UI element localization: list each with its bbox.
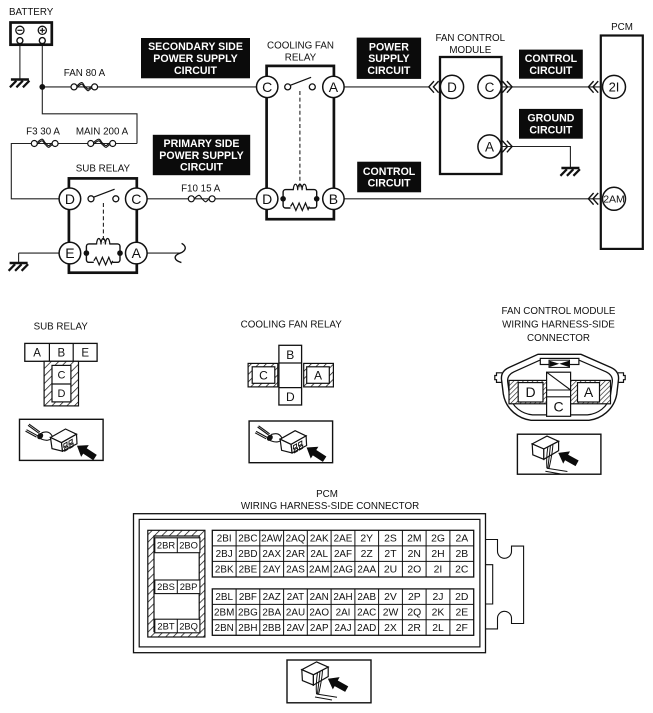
svg-text:2E: 2E — [455, 608, 468, 619]
svg-text:2AL: 2AL — [310, 549, 328, 560]
svg-text:C: C — [131, 191, 141, 207]
svg-text:2BG: 2BG — [238, 608, 258, 619]
svg-text:2BR: 2BR — [157, 540, 175, 551]
svg-text:FAN CONTROL MODULE: FAN CONTROL MODULE — [502, 306, 616, 317]
svg-text:2O: 2O — [407, 565, 421, 576]
svg-text:2AE: 2AE — [334, 534, 353, 545]
svg-text:POWER SUPPLY: POWER SUPPLY — [159, 150, 243, 162]
svg-text:2AX: 2AX — [262, 549, 281, 560]
svg-text:CONNECTOR: CONNECTOR — [527, 333, 590, 344]
svg-text:2AT: 2AT — [287, 592, 304, 603]
svg-text:2BK: 2BK — [215, 565, 234, 576]
svg-text:2AM: 2AM — [603, 194, 625, 206]
svg-text:RELAY: RELAY — [285, 52, 317, 63]
svg-text:2P: 2P — [408, 592, 421, 603]
svg-text:2Z: 2Z — [361, 549, 374, 560]
svg-text:2Q: 2Q — [407, 608, 421, 619]
svg-text:2L: 2L — [432, 623, 444, 634]
svg-text:2BE: 2BE — [239, 565, 258, 576]
svg-text:2AC: 2AC — [357, 608, 376, 619]
svg-text:SUB RELAY: SUB RELAY — [76, 164, 131, 175]
svg-text:SECONDARY SIDE: SECONDARY SIDE — [148, 41, 243, 53]
svg-text:PCM: PCM — [316, 489, 338, 500]
svg-text:2C: 2C — [455, 565, 469, 576]
svg-text:2BF: 2BF — [239, 592, 257, 603]
svg-text:2BP: 2BP — [180, 581, 198, 592]
svg-text:POWER SUPPLY: POWER SUPPLY — [153, 53, 237, 65]
svg-text:D: D — [65, 191, 75, 207]
svg-text:CIRCUIT: CIRCUIT — [174, 65, 217, 77]
svg-text:CONTROL: CONTROL — [525, 53, 578, 65]
svg-text:FAN 80 A: FAN 80 A — [64, 68, 106, 79]
svg-text:2AD: 2AD — [357, 623, 376, 634]
svg-text:2R: 2R — [408, 623, 422, 634]
svg-text:A: A — [584, 384, 594, 400]
svg-text:2AZ: 2AZ — [263, 592, 281, 603]
svg-text:2H: 2H — [431, 549, 444, 560]
svg-text:2BD: 2BD — [238, 549, 257, 560]
svg-text:2BC: 2BC — [238, 534, 257, 545]
svg-text:2AA: 2AA — [357, 565, 376, 576]
svg-text:WIRING HARNESS-SIDE CONNECTOR: WIRING HARNESS-SIDE CONNECTOR — [241, 501, 419, 512]
svg-text:2X: 2X — [384, 623, 397, 634]
svg-text:D: D — [262, 191, 272, 207]
svg-text:CIRCUIT: CIRCUIT — [368, 178, 411, 190]
svg-text:C: C — [259, 368, 268, 382]
svg-text:2AP: 2AP — [310, 623, 329, 634]
svg-text:2BJ: 2BJ — [216, 549, 233, 560]
svg-text:COOLING FAN: COOLING FAN — [267, 41, 334, 52]
svg-text:D: D — [58, 388, 66, 400]
svg-text:C: C — [58, 370, 66, 382]
svg-text:2AV: 2AV — [287, 623, 305, 634]
svg-text:2BN: 2BN — [215, 623, 234, 634]
svg-text:2BB: 2BB — [262, 623, 281, 634]
svg-text:C: C — [262, 79, 272, 95]
svg-text:2BT: 2BT — [157, 620, 174, 631]
svg-text:E: E — [81, 348, 89, 360]
svg-text:CIRCUIT: CIRCUIT — [529, 125, 572, 137]
svg-text:2AB: 2AB — [357, 592, 376, 603]
svg-text:CIRCUIT: CIRCUIT — [529, 65, 572, 77]
svg-text:BATTERY: BATTERY — [9, 7, 54, 18]
svg-text:B: B — [57, 348, 65, 360]
svg-text:D: D — [526, 384, 536, 400]
svg-text:E: E — [65, 245, 74, 261]
svg-text:2BI: 2BI — [217, 534, 232, 545]
svg-text:2F: 2F — [456, 623, 468, 634]
svg-text:D: D — [286, 390, 295, 404]
svg-text:D: D — [447, 80, 457, 95]
svg-text:2AQ: 2AQ — [286, 534, 306, 545]
svg-text:2N: 2N — [408, 549, 421, 560]
svg-text:2AY: 2AY — [263, 565, 281, 576]
svg-text:CONTROL: CONTROL — [363, 166, 416, 178]
svg-text:2AI: 2AI — [336, 608, 351, 619]
svg-text:2BS: 2BS — [157, 581, 175, 592]
svg-text:2BL: 2BL — [215, 592, 233, 603]
svg-text:2BO: 2BO — [179, 540, 198, 551]
svg-text:2BH: 2BH — [238, 623, 257, 634]
svg-text:WIRING HARNESS-SIDE: WIRING HARNESS-SIDE — [502, 320, 615, 331]
svg-text:C: C — [485, 80, 495, 95]
svg-text:F3 30 A: F3 30 A — [26, 127, 60, 138]
svg-text:2AM: 2AM — [309, 565, 329, 576]
svg-text:2AJ: 2AJ — [334, 623, 351, 634]
svg-text:2AG: 2AG — [333, 565, 353, 576]
svg-text:A: A — [132, 245, 142, 261]
svg-text:POWER: POWER — [369, 41, 409, 53]
svg-text:2AK: 2AK — [310, 534, 329, 545]
svg-text:MODULE: MODULE — [449, 45, 491, 56]
svg-text:A: A — [33, 348, 41, 360]
svg-text:SUB RELAY: SUB RELAY — [34, 321, 89, 332]
svg-text:2D: 2D — [455, 592, 468, 603]
svg-text:GROUND: GROUND — [527, 113, 574, 125]
svg-text:2I: 2I — [609, 80, 620, 95]
svg-text:C: C — [554, 398, 564, 414]
svg-text:PRIMARY SIDE: PRIMARY SIDE — [164, 138, 240, 150]
svg-text:2AF: 2AF — [334, 549, 352, 560]
svg-text:A: A — [314, 368, 322, 382]
svg-text:SUPPLY: SUPPLY — [368, 53, 409, 65]
svg-text:B: B — [286, 348, 294, 362]
svg-text:2I: 2I — [434, 565, 443, 576]
svg-text:2BA: 2BA — [262, 608, 281, 619]
svg-text:2S: 2S — [384, 534, 397, 545]
svg-text:2U: 2U — [384, 565, 397, 576]
svg-text:2A: 2A — [455, 534, 468, 545]
svg-text:A: A — [485, 139, 494, 154]
svg-text:2V: 2V — [384, 592, 397, 603]
svg-text:COOLING FAN RELAY: COOLING FAN RELAY — [241, 320, 343, 331]
svg-text:2G: 2G — [431, 534, 445, 545]
svg-text:F10 15 A: F10 15 A — [181, 183, 221, 194]
svg-text:2W: 2W — [383, 608, 399, 619]
svg-text:PCM: PCM — [611, 22, 633, 33]
svg-text:2T: 2T — [384, 549, 397, 560]
svg-text:2AU: 2AU — [286, 608, 305, 619]
svg-text:2BM: 2BM — [214, 608, 234, 619]
svg-text:MAIN 200 A: MAIN 200 A — [76, 127, 129, 138]
svg-text:2AH: 2AH — [333, 592, 352, 603]
svg-text:2AW: 2AW — [261, 534, 283, 545]
svg-text:FAN CONTROL: FAN CONTROL — [435, 33, 505, 44]
svg-text:2AS: 2AS — [286, 565, 305, 576]
svg-text:2AN: 2AN — [310, 592, 329, 603]
svg-text:2B: 2B — [455, 549, 468, 560]
svg-text:2BQ: 2BQ — [179, 620, 198, 631]
svg-text:B: B — [329, 191, 338, 207]
svg-text:2AO: 2AO — [309, 608, 329, 619]
svg-text:2AR: 2AR — [286, 549, 305, 560]
svg-text:CIRCUIT: CIRCUIT — [367, 65, 410, 77]
svg-text:2Y: 2Y — [360, 534, 373, 545]
svg-text:2K: 2K — [432, 608, 445, 619]
svg-text:2J: 2J — [433, 592, 444, 603]
svg-text:CIRCUIT: CIRCUIT — [180, 162, 223, 174]
svg-text:2M: 2M — [407, 534, 421, 545]
svg-text:A: A — [329, 79, 339, 95]
